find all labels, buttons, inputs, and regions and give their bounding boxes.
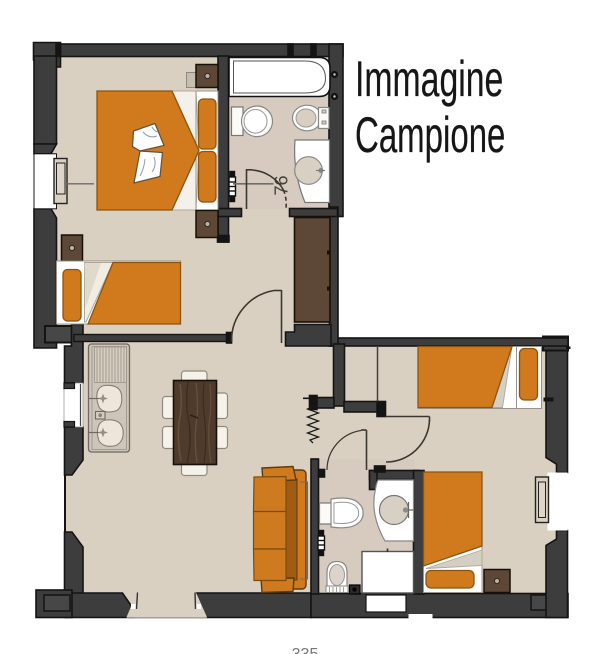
svg-text:Campione: Campione (355, 107, 505, 162)
svg-text:Immagine: Immagine (355, 51, 503, 107)
svg-text:335: 335 (292, 646, 319, 654)
